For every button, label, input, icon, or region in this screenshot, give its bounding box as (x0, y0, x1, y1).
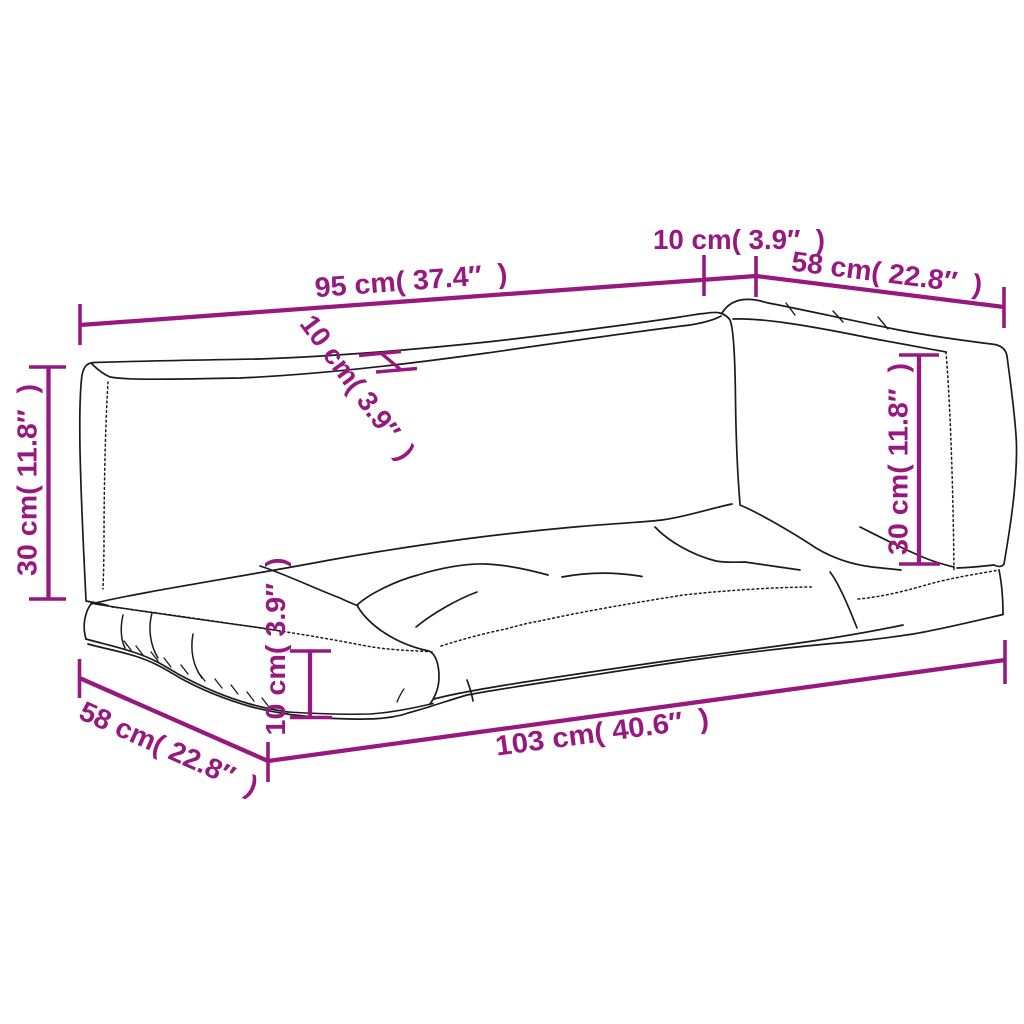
svg-text:30 cm( 11.8″ ): 30 cm( 11.8″ ) (12, 384, 43, 576)
svg-text:30 cm( 11.8″ ): 30 cm( 11.8″ ) (883, 363, 914, 555)
svg-text:10 cm( 3.9″ ): 10 cm( 3.9″ ) (260, 558, 291, 736)
